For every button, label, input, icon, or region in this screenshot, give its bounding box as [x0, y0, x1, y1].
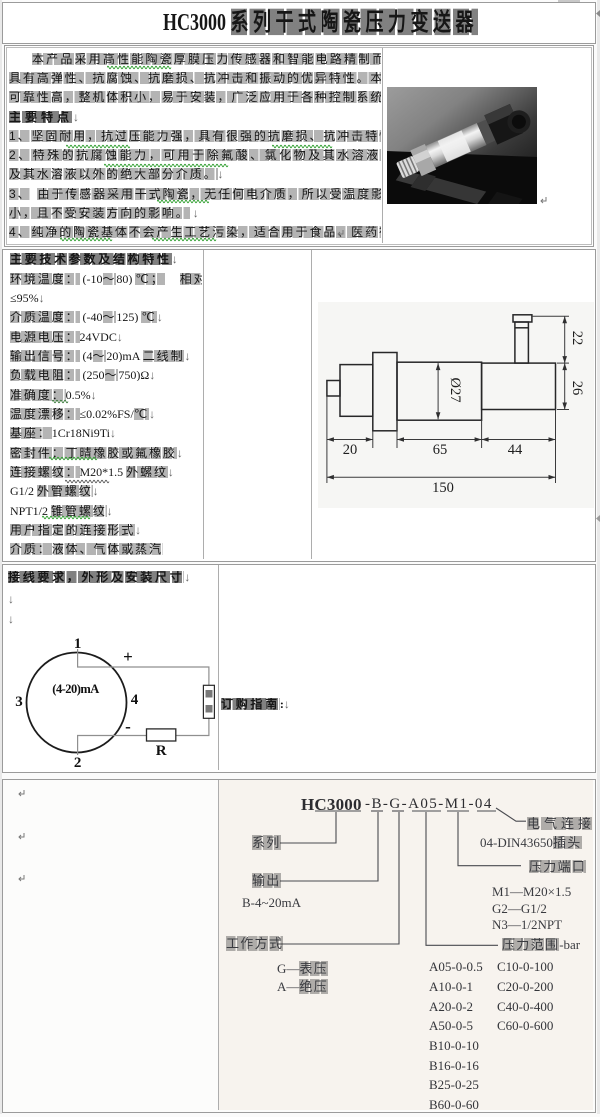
- svg-text:65: 65: [433, 442, 448, 458]
- svg-text:+: +: [123, 647, 133, 666]
- svg-text:3: 3: [15, 694, 23, 710]
- svg-text:4: 4: [131, 692, 139, 708]
- svg-text:R: R: [156, 743, 167, 759]
- svg-text:150: 150: [432, 480, 454, 496]
- svg-text:Ø27: Ø27: [447, 378, 463, 403]
- svg-text:-: -: [125, 717, 131, 736]
- svg-text:44: 44: [508, 442, 523, 458]
- svg-text:2: 2: [74, 755, 82, 771]
- svg-text:20: 20: [343, 442, 358, 458]
- svg-text:26: 26: [569, 381, 585, 396]
- svg-text:(4-20)mA: (4-20)mA: [52, 682, 99, 696]
- svg-text:22: 22: [569, 331, 585, 346]
- svg-text:1: 1: [74, 636, 82, 652]
